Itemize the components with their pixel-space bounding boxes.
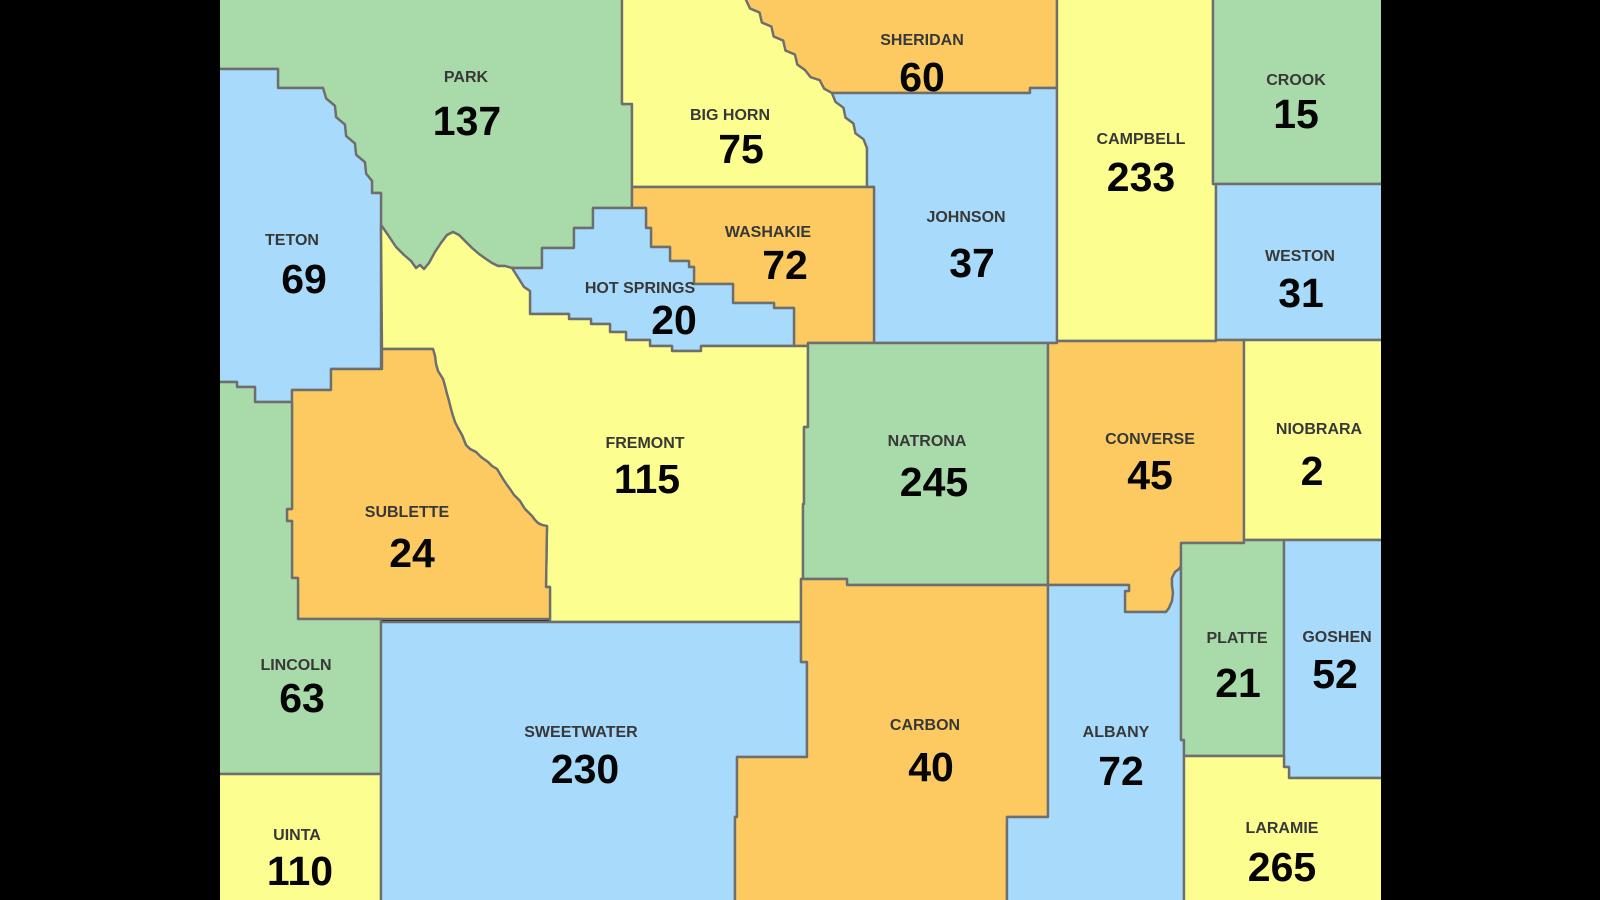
svg-text:UINTA: UINTA xyxy=(273,827,321,844)
svg-text:40: 40 xyxy=(908,744,954,790)
svg-text:72: 72 xyxy=(1098,748,1144,794)
svg-text:BIG HORN: BIG HORN xyxy=(690,107,770,124)
svg-text:WESTON: WESTON xyxy=(1265,248,1335,265)
svg-text:265: 265 xyxy=(1248,844,1316,890)
svg-text:SUBLETTE: SUBLETTE xyxy=(365,504,450,521)
svg-text:20: 20 xyxy=(651,297,697,343)
svg-text:21: 21 xyxy=(1215,660,1261,706)
svg-text:ALBANY: ALBANY xyxy=(1083,724,1150,741)
svg-text:110: 110 xyxy=(267,848,333,894)
svg-text:CROOK: CROOK xyxy=(1266,72,1326,89)
svg-text:31: 31 xyxy=(1278,270,1324,316)
svg-text:PLATTE: PLATTE xyxy=(1206,630,1267,647)
svg-text:JOHNSON: JOHNSON xyxy=(926,209,1005,226)
svg-text:69: 69 xyxy=(281,256,327,302)
svg-text:TETON: TETON xyxy=(265,232,319,249)
svg-text:45: 45 xyxy=(1127,452,1173,498)
svg-text:230: 230 xyxy=(551,746,619,792)
svg-text:SWEETWATER: SWEETWATER xyxy=(524,724,638,741)
svg-text:37: 37 xyxy=(949,240,995,286)
svg-text:WASHAKIE: WASHAKIE xyxy=(725,224,812,241)
svg-text:LINCOLN: LINCOLN xyxy=(260,657,331,674)
svg-text:CAMPBELL: CAMPBELL xyxy=(1097,131,1186,148)
svg-text:NATRONA: NATRONA xyxy=(888,433,967,450)
svg-text:CARBON: CARBON xyxy=(890,717,960,734)
svg-text:HOT SPRINGS: HOT SPRINGS xyxy=(585,280,696,297)
svg-text:24: 24 xyxy=(389,530,435,576)
svg-text:137: 137 xyxy=(433,98,501,144)
svg-text:75: 75 xyxy=(718,126,764,172)
svg-text:72: 72 xyxy=(762,242,808,288)
svg-text:CONVERSE: CONVERSE xyxy=(1105,431,1195,448)
svg-text:245: 245 xyxy=(900,459,968,505)
svg-text:PARK: PARK xyxy=(444,69,489,86)
svg-text:233: 233 xyxy=(1107,154,1175,200)
svg-text:FREMONT: FREMONT xyxy=(605,435,684,452)
svg-text:2: 2 xyxy=(1301,448,1324,494)
svg-text:SHERIDAN: SHERIDAN xyxy=(880,32,964,49)
svg-text:15: 15 xyxy=(1273,91,1319,137)
svg-text:115: 115 xyxy=(614,456,680,502)
svg-text:LARAMIE: LARAMIE xyxy=(1246,820,1319,837)
svg-text:GOSHEN: GOSHEN xyxy=(1302,629,1371,646)
svg-text:63: 63 xyxy=(279,675,325,721)
svg-text:NIOBRARA: NIOBRARA xyxy=(1276,421,1363,438)
svg-text:52: 52 xyxy=(1312,651,1358,697)
